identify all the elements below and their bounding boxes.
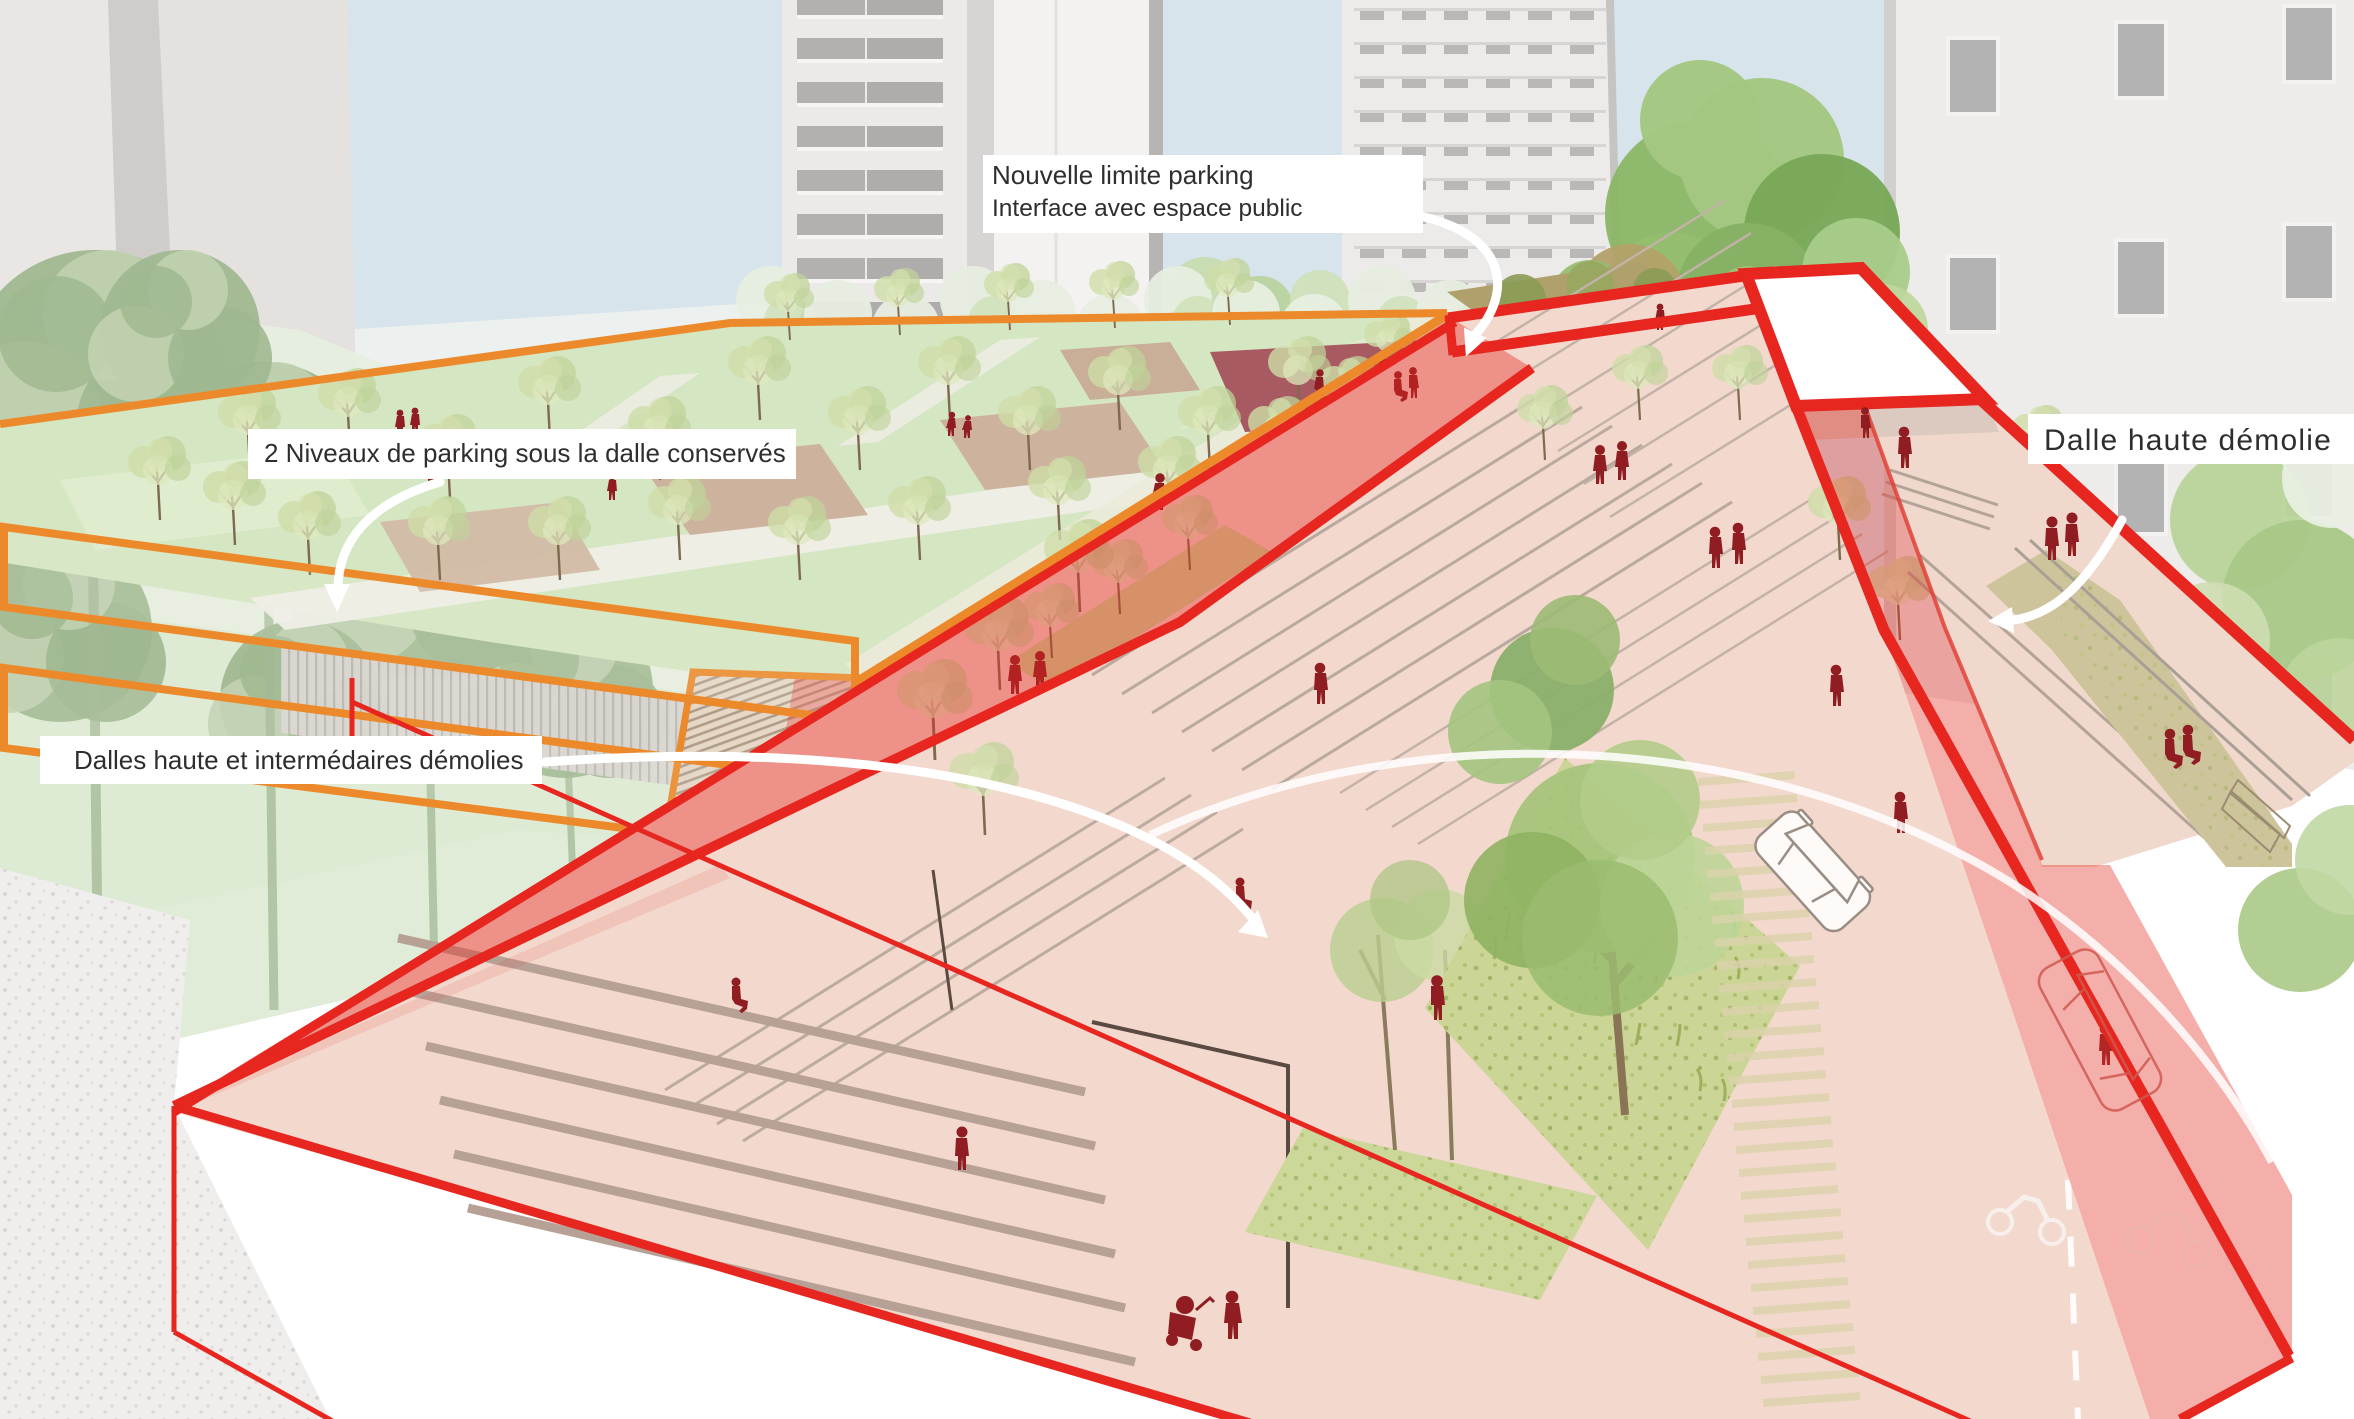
svg-text:Nouvelle limite parking: Nouvelle limite parking bbox=[992, 160, 1254, 190]
svg-text:2 Niveaux de parking sous la d: 2 Niveaux de parking sous la dalle conse… bbox=[264, 438, 786, 468]
svg-text:Dalle haute démolie: Dalle haute démolie bbox=[2044, 424, 2332, 457]
svg-text:Dalles haute et intermédaires: Dalles haute et intermédaires démolies bbox=[74, 745, 523, 775]
svg-text:Interface avec espace public: Interface avec espace public bbox=[992, 195, 1303, 222]
